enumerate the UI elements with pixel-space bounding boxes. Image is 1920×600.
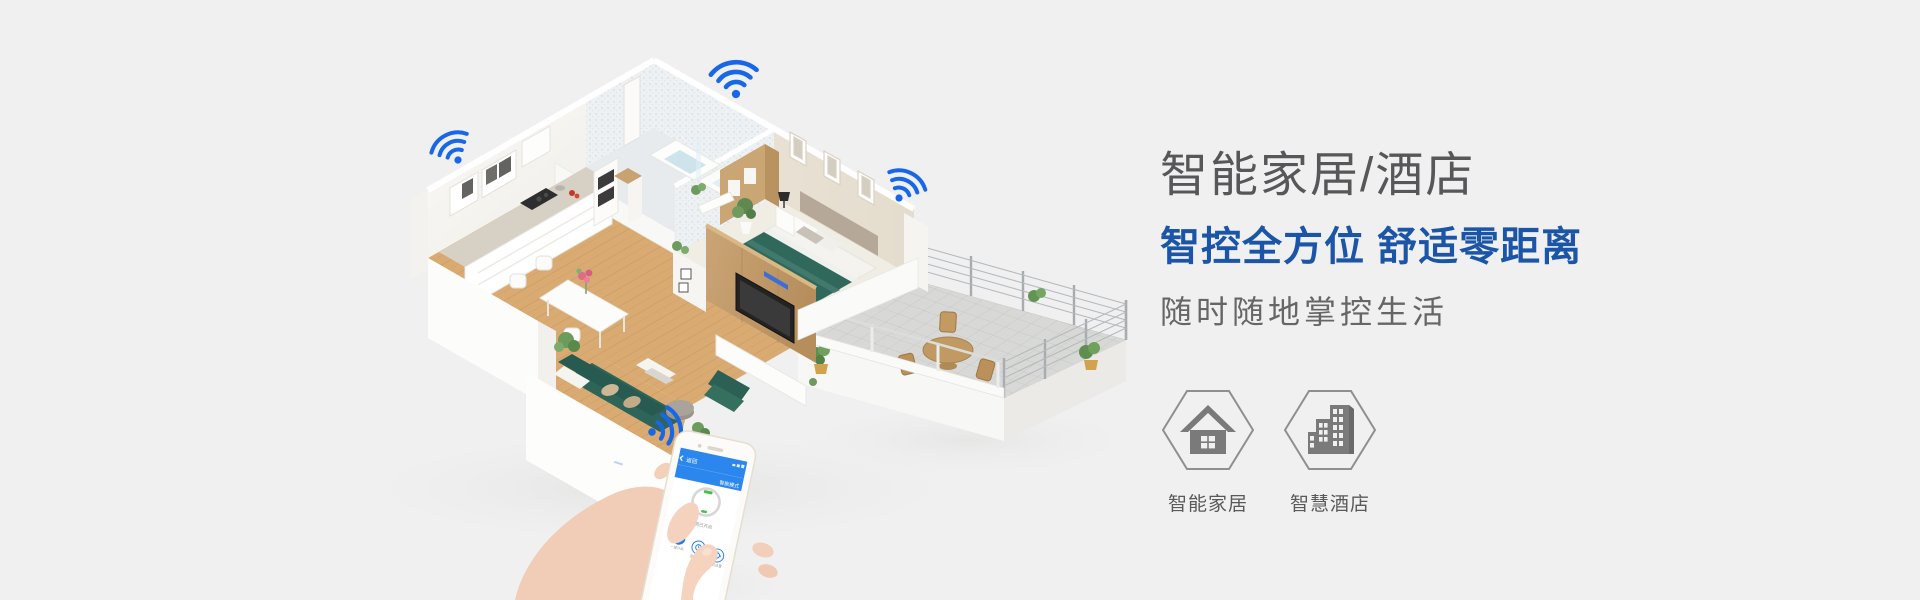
feature-badges: 智能家居 xyxy=(1160,388,1780,516)
home-icon xyxy=(1180,405,1236,454)
phone-illustration: 返回 智能模式 空调已开启 一键开启 xyxy=(455,345,925,600)
feature-smart-hotel[interactable]: 智慧酒店 xyxy=(1282,388,1378,516)
hero-headline: 智控全方位 舒适零距离 xyxy=(1160,225,1780,269)
entry-door xyxy=(624,76,640,146)
feature-smart-home[interactable]: 智能家居 xyxy=(1160,388,1256,516)
glass-divider xyxy=(696,136,701,182)
home-hexagon xyxy=(1160,388,1256,472)
lamp xyxy=(778,192,790,201)
tomatoes xyxy=(569,190,575,196)
hero-subline: 随时随地掌控生活 xyxy=(1160,295,1780,330)
feature-label: 智慧酒店 xyxy=(1282,489,1378,516)
hand-with-phone: 返回 智能模式 空调已开启 一键开启 xyxy=(455,345,925,600)
hero-title: 智能家居/酒店 xyxy=(1160,150,1780,203)
hero-banner: 返回 智能模式 空调已开启 一键开启 xyxy=(0,0,1920,600)
fingertip xyxy=(750,540,775,560)
hotel-hexagon xyxy=(1282,388,1378,472)
feature-label: 智能家居 xyxy=(1160,489,1256,516)
hotel-icon xyxy=(1308,405,1354,454)
hero-copy: 智能家居/酒店 智控全方位 舒适零距离 随时随地掌控生活 智能家居 xyxy=(1160,150,1780,516)
